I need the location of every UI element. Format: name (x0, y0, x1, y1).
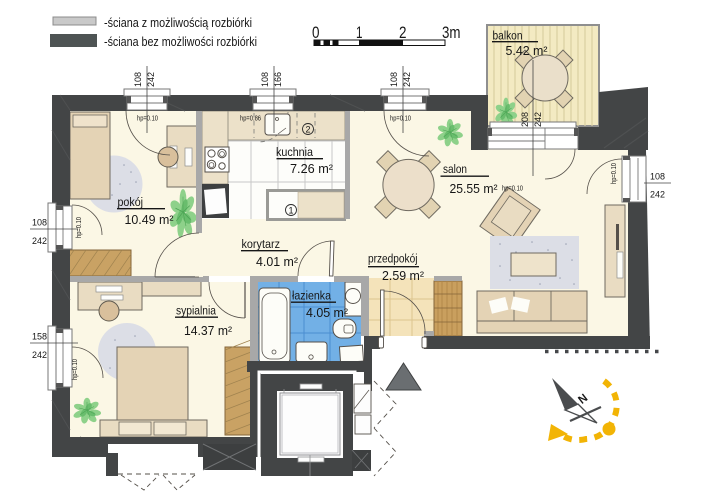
svg-text:balkon: balkon (493, 29, 523, 43)
svg-text:korytarz: korytarz (242, 237, 281, 251)
svg-text:242: 242 (650, 190, 665, 200)
svg-text:4.05 m²: 4.05 m² (306, 305, 349, 320)
svg-text:-ściana bez możliwości rozbiór: -ściana bez możliwości rozbiórki (104, 34, 257, 49)
svg-text:2: 2 (305, 125, 310, 135)
svg-text:108: 108 (260, 72, 270, 87)
svg-text:166: 166 (273, 72, 283, 87)
svg-text:łazienka: łazienka (292, 289, 331, 303)
svg-text:242: 242 (533, 112, 543, 127)
svg-text:108: 108 (650, 172, 665, 182)
svg-text:salon: salon (443, 162, 467, 176)
svg-text:3m: 3m (442, 23, 461, 42)
svg-text:5.42 m²: 5.42 m² (506, 43, 549, 58)
svg-text:4.01 m²: 4.01 m² (256, 254, 299, 269)
svg-text:hp=0.10: hp=0.10 (611, 163, 618, 184)
svg-text:-ściana z możliwością rozbiórk: -ściana z możliwością rozbiórki (104, 15, 252, 30)
svg-text:hp=0.10: hp=0.10 (72, 359, 79, 380)
svg-text:25.55 m²: 25.55 m² (450, 181, 499, 196)
svg-text:7.26 m²: 7.26 m² (290, 161, 334, 176)
svg-text:pokój: pokój (118, 195, 144, 209)
svg-text:14.37 m²: 14.37 m² (184, 323, 233, 338)
svg-text:242: 242 (32, 350, 47, 360)
svg-text:hp=0.10: hp=0.10 (502, 186, 523, 193)
svg-text:158: 158 (32, 332, 47, 342)
svg-text:208: 208 (520, 112, 530, 127)
svg-text:2.59 m²: 2.59 m² (382, 268, 425, 283)
svg-text:242: 242 (146, 72, 156, 87)
svg-text:kuchnia: kuchnia (276, 145, 313, 159)
svg-text:1: 1 (356, 23, 363, 42)
svg-text:0: 0 (312, 23, 320, 42)
svg-text:hp=0.86: hp=0.86 (240, 116, 261, 123)
svg-text:hp=0.10: hp=0.10 (76, 217, 83, 238)
svg-text:hp=0.10: hp=0.10 (137, 116, 158, 123)
svg-text:108: 108 (32, 218, 47, 228)
svg-text:sypialnia: sypialnia (176, 304, 216, 318)
svg-text:1: 1 (288, 206, 293, 216)
svg-text:2: 2 (399, 23, 407, 42)
svg-text:242: 242 (32, 236, 47, 246)
svg-text:10.49 m²: 10.49 m² (125, 212, 175, 227)
svg-text:hp=0.10: hp=0.10 (390, 116, 411, 123)
svg-text:242: 242 (402, 72, 412, 87)
svg-text:108: 108 (389, 72, 399, 87)
svg-text:przedpokój: przedpokój (368, 252, 418, 266)
svg-text:108: 108 (133, 72, 143, 87)
